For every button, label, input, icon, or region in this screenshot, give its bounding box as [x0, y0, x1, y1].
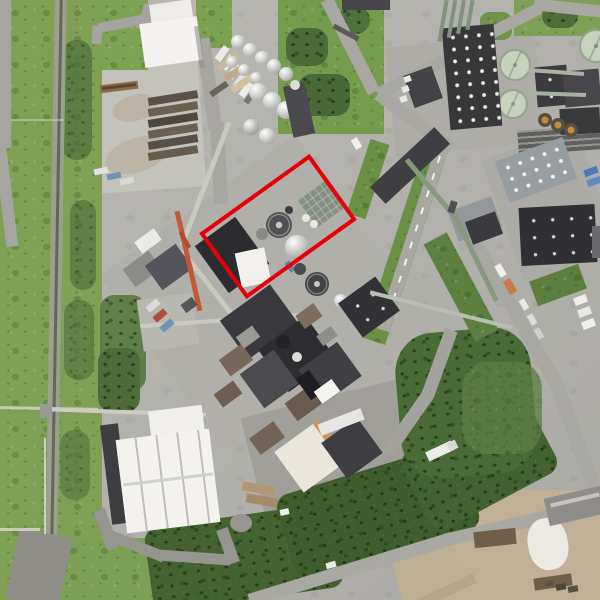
- sphere-tank-5: [279, 67, 293, 81]
- sphere-tank-7: [238, 64, 250, 76]
- trees-left-1: [62, 40, 92, 160]
- west-road-1: [0, 0, 11, 148]
- conveyor-west-head: [40, 404, 52, 418]
- bldg-ne-big: [442, 24, 503, 130]
- bldg-right-big: [519, 204, 598, 266]
- digester-2: [551, 118, 565, 132]
- bldg-top-center: [342, 0, 390, 10]
- loop-road-topleft-3: [91, 26, 102, 45]
- trees-left-4: [60, 430, 90, 500]
- culdesac: [230, 514, 252, 532]
- grass-right-fringe: [462, 362, 542, 454]
- aerial-image: [0, 0, 600, 600]
- column-top: [290, 80, 300, 90]
- plant-tank-dark: [276, 335, 290, 349]
- aerial-scene: [0, 0, 600, 600]
- tank-south-dark: [305, 272, 329, 296]
- bldg-right-annex: [592, 226, 600, 258]
- clarifier-tank-1: [499, 49, 531, 81]
- field-line-2: [0, 528, 40, 531]
- warehouse-north: [139, 16, 203, 68]
- plant-tank-white: [292, 352, 302, 362]
- tank-south-small: [294, 263, 306, 275]
- digester-3: [564, 123, 578, 137]
- clarifier-tank-2: [498, 89, 528, 119]
- trees-topcenter-1: [286, 28, 328, 66]
- rail-fence: [44, 438, 46, 534]
- sphere-tank-big-4: [243, 119, 259, 135]
- trees-left-2: [70, 200, 96, 290]
- trees-left-3: [64, 300, 94, 380]
- sphere-tank-big-5: [259, 128, 275, 144]
- trees-left-low: [98, 348, 140, 412]
- sphere-tank-6: [226, 56, 238, 68]
- digester-1: [538, 113, 552, 127]
